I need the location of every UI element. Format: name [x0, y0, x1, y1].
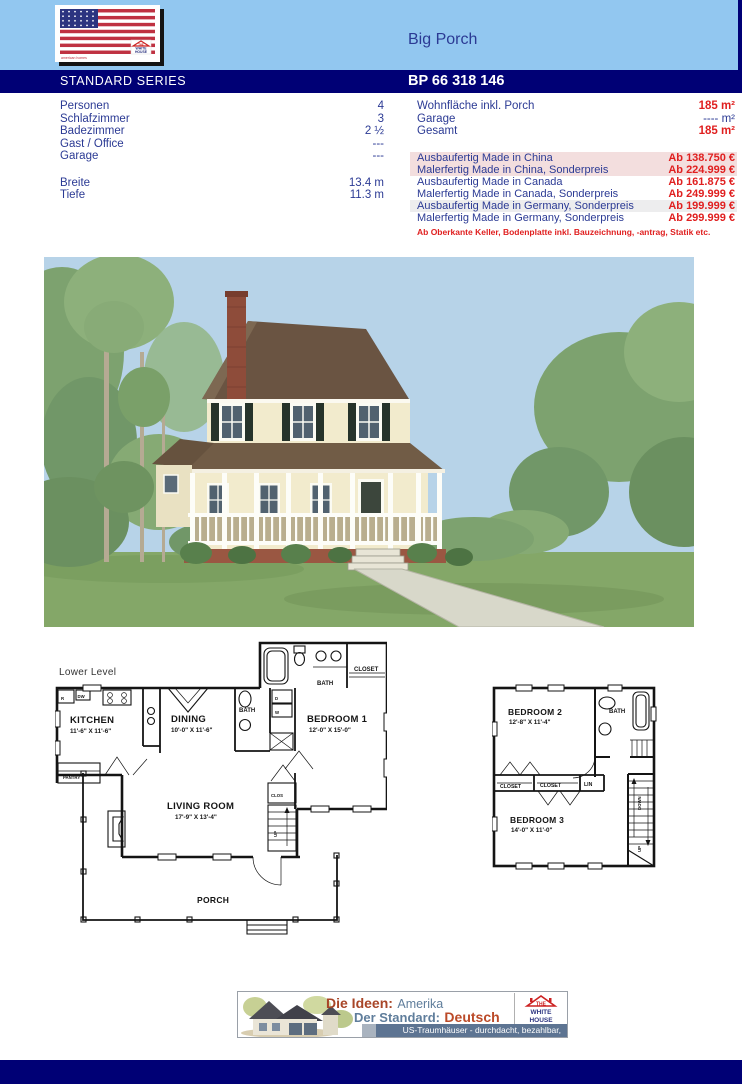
spec-table-left: Personen 4 Schlafzimmer 3 Badezimmer 2 ½…: [60, 100, 384, 202]
price-note: Ab Oberkante Keller, Bodenplatte inkl. B…: [410, 227, 737, 237]
area-value: 185 m²: [699, 125, 735, 138]
room-label-closet1: CLOSET: [540, 783, 562, 789]
price-label: Ausbaufertig Made in China: [417, 152, 553, 164]
appliance-dw: DW: [78, 694, 86, 699]
banner-tagline: US-Traumhäuser - durchdacht, bezahlbar, …: [376, 1024, 567, 1037]
stair-down-label: DOWN: [637, 796, 642, 810]
room-label-porch: PORCH: [197, 895, 229, 905]
spec-row: Tiefe 11.3 m: [60, 189, 384, 202]
room-label-clos: CLOS: [271, 793, 283, 798]
white-house-emblem-icon: THE WHITE HOUSE: [131, 40, 151, 54]
spec-row: Breite 13.4 m: [60, 177, 384, 190]
price-row: Malerfertig Made in Germany, Sonderpreis…: [410, 212, 737, 224]
price-table: Ausbaufertig Made in China Ab 138.750 € …: [410, 152, 737, 237]
price-label: Malerfertig Made in China, Sonderpreis: [417, 164, 608, 176]
room-label-lin: LIN: [584, 782, 593, 788]
spec-label: Gast / Office: [60, 138, 124, 151]
price-row: Ausbaufertig Made in Germany, Sonderprei…: [410, 200, 737, 212]
banner-standard-label: Der Standard:: [354, 1010, 440, 1025]
spec-row: Garage ---: [60, 150, 384, 163]
room-label-pantry: PANTRY: [63, 775, 80, 780]
area-label: Gesamt: [417, 125, 457, 138]
room-label-bath-upper: BATH: [317, 681, 333, 687]
price-row: Ausbaufertig Made in Canada Ab 161.875 €: [410, 176, 737, 188]
spec-value: 13.4 m: [349, 177, 384, 190]
page-title: Big Porch: [408, 31, 477, 49]
spec-row: Badezimmer 2 ½: [60, 125, 384, 138]
spec-table-right: Wohnfläche inkl. Porch 185 m² Garage ---…: [410, 100, 737, 237]
area-value: ---- m²: [703, 113, 735, 126]
header-right-edge: [738, 0, 742, 72]
white-house-logo-icon: THE WHITE HOUSE: [521, 993, 561, 1025]
series-bar: STANDARD SERIES BP 66 318 146: [0, 70, 742, 93]
series-label: STANDARD SERIES: [60, 70, 186, 93]
room-label-bedroom1: BEDROOM 1: [307, 714, 368, 725]
room-dims-dining: 10'-0" X 11'-6": [171, 727, 213, 734]
spec-value: 3: [378, 113, 384, 126]
brand-banner: Die Ideen: Amerika Der Standard: Deutsch…: [237, 991, 568, 1038]
area-label: Wohnfläche inkl. Porch: [417, 100, 534, 113]
appliance-d: D: [275, 696, 278, 701]
flag-brand-text: american homes: [61, 56, 87, 60]
svg-text:THE: THE: [536, 1002, 547, 1008]
stair-up-label-upper: UP: [637, 846, 642, 852]
price-row: Ausbaufertig Made in China Ab 138.750 €: [410, 152, 737, 164]
house-illustration: [44, 257, 694, 627]
room-label-bath: BATH: [609, 709, 625, 715]
price-label: Malerfertig Made in Canada, Sonderpreis: [417, 188, 618, 200]
american-homes-flag-logo: american homes THE WHITE HOUSE: [55, 5, 160, 62]
us-flag-icon: american homes THE WHITE HOUSE: [55, 5, 160, 62]
spec-value: 4: [378, 100, 384, 113]
spec-value: 2 ½: [365, 125, 384, 138]
room-label-kitchen: KITCHEN: [70, 715, 114, 726]
footer-bar: [0, 1060, 742, 1084]
price-row: Malerfertig Made in Canada, Sonderpreis …: [410, 188, 737, 200]
price-row: Malerfertig Made in China, Sonderpreis A…: [410, 164, 737, 176]
price-value: Ab 161.875 €: [668, 176, 735, 188]
room-dims-kitchen: 11'-6" X 11'-6": [70, 728, 111, 735]
room-label-closet2: CLOSET: [500, 784, 522, 790]
room-label-bedroom3: BEDROOM 3: [510, 815, 564, 825]
area-label: Garage: [417, 113, 455, 126]
area-value: 185 m²: [699, 100, 735, 113]
spec-value: ---: [373, 138, 385, 151]
brochure-page: american homes THE WHITE HOUSE Big Porch…: [0, 0, 742, 1084]
price-label: Ausbaufertig Made in Canada: [417, 176, 563, 188]
header-band: american homes THE WHITE HOUSE Big Porch: [0, 0, 742, 72]
price-value: Ab 249.999 €: [668, 188, 735, 200]
price-value: Ab 299.999 €: [668, 212, 735, 224]
spec-label: Badezimmer: [60, 125, 125, 138]
level-label: Lower Level: [59, 667, 116, 678]
svg-text:HOUSE: HOUSE: [135, 50, 148, 54]
room-dims-bedroom2: 12'-8" X 11'-4": [509, 719, 551, 726]
spec-value: 11.3 m: [350, 189, 384, 202]
spec-label: Schlafzimmer: [60, 113, 130, 126]
spec-label: Personen: [60, 100, 109, 113]
spec-label: Breite: [60, 177, 90, 190]
spacer: [60, 163, 384, 177]
room-dims-bedroom1: 12'-0" X 15'-0": [309, 727, 351, 734]
banner-strip-fade: [362, 1024, 376, 1037]
svg-text:WHITE: WHITE: [530, 1009, 552, 1016]
price-label: Malerfertig Made in Germany, Sonderpreis: [417, 212, 624, 224]
price-value: Ab 199.999 €: [668, 200, 735, 212]
room-dims-living: 17'-9" X 13'-4": [175, 814, 217, 821]
appliance-w: W: [275, 710, 280, 715]
room-label-bath-mid: BATH: [239, 708, 255, 714]
appliance-r: R: [61, 696, 65, 701]
spec-row: Personen 4: [60, 100, 384, 113]
room-label-living: LIVING ROOM: [167, 801, 234, 812]
floorplan-lower: Lower Level CLOSET BATH R DW D W: [55, 641, 387, 937]
spec-value: ---: [373, 150, 385, 163]
area-row: Gesamt 185 m²: [410, 125, 737, 138]
area-row: Wohnfläche inkl. Porch 185 m²: [410, 100, 737, 113]
spec-label: Tiefe: [60, 189, 85, 202]
room-label-closet: CLOSET: [354, 667, 379, 673]
stair-up-label: UP: [273, 831, 278, 837]
upper-windows: [211, 403, 390, 441]
white-house-logo: THE WHITE HOUSE: [516, 993, 565, 1025]
price-value: Ab 224.999 €: [668, 164, 735, 176]
room-label-dining: DINING: [171, 714, 206, 725]
room-label-bedroom2: BEDROOM 2: [508, 707, 562, 717]
spec-row: Gast / Office ---: [60, 138, 384, 151]
area-row: Garage ---- m²: [410, 113, 737, 126]
price-label: Ausbaufertig Made in Germany, Sonderprei…: [417, 200, 634, 212]
svg-text:HOUSE: HOUSE: [529, 1017, 553, 1024]
room-dims-bedroom3: 14'-0" X 11'-0": [511, 827, 553, 834]
price-value: Ab 138.750 €: [668, 152, 735, 164]
banner-divider: [514, 993, 515, 1025]
banner-standard-value: Deutsch: [444, 1009, 499, 1025]
model-number: BP 66 318 146: [408, 70, 504, 93]
spec-label: Garage: [60, 150, 98, 163]
floorplan-upper: BATH CLOSET CLOSET LIN DOWN UP BEDROOM 2…: [492, 682, 658, 872]
spec-row: Schlafzimmer 3: [60, 113, 384, 126]
